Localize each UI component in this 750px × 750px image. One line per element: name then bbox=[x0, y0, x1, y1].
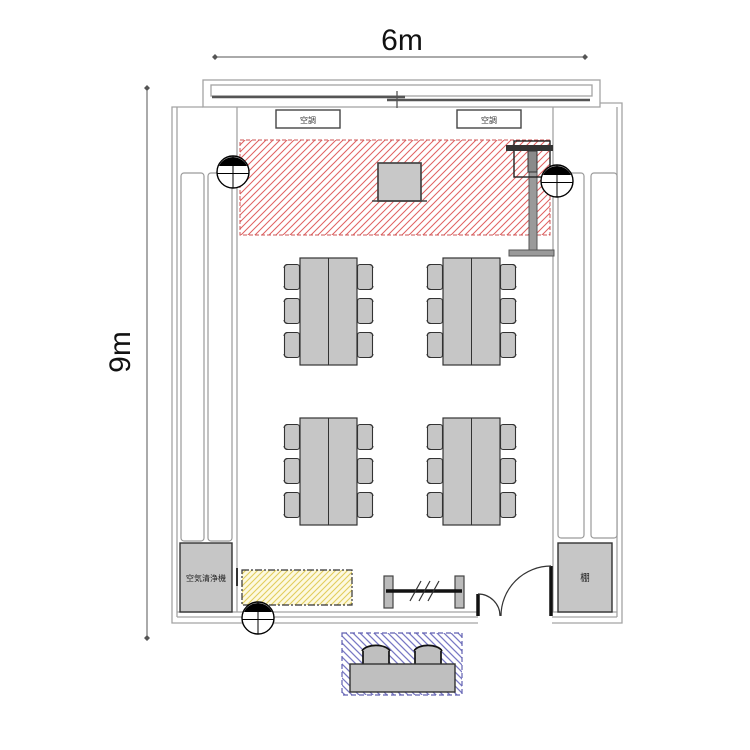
reception-stool-2 bbox=[414, 645, 442, 665]
hvac-right-label: 空調 bbox=[481, 115, 497, 125]
dimension-height: 9m bbox=[104, 85, 150, 641]
top-wall-band bbox=[203, 80, 600, 107]
floor-storage-zone bbox=[242, 570, 352, 605]
reception-area bbox=[342, 633, 462, 695]
table-group-4 bbox=[427, 418, 516, 525]
hvac-unit-right: 空調 bbox=[457, 110, 521, 128]
partition-panels-left bbox=[181, 173, 232, 541]
ceiling-speaker-icon-top-left bbox=[217, 156, 249, 188]
air-purifier-label: 空気清浄機 bbox=[186, 573, 226, 583]
ceiling-speaker-icon-bottom-left bbox=[242, 602, 274, 634]
hvac-unit-left: 空調 bbox=[276, 110, 340, 128]
floor-plan-drawing: 空調 空調 空気清浄機 棚 bbox=[0, 0, 750, 750]
reception-stool-1 bbox=[362, 645, 390, 665]
mobile-whiteboard bbox=[384, 576, 464, 608]
air-purifier: 空気清浄機 bbox=[180, 543, 237, 612]
shelf: 棚 bbox=[558, 543, 612, 612]
table-group-2 bbox=[427, 258, 516, 365]
entrance-door bbox=[478, 566, 551, 616]
screen bbox=[372, 163, 427, 201]
partition-panels-right bbox=[558, 173, 617, 538]
hvac-left-label: 空調 bbox=[300, 115, 316, 125]
floor-plan: 空調 空調 空気清浄機 棚 bbox=[0, 0, 750, 750]
reception-counter bbox=[350, 664, 455, 692]
ceiling-speaker-icon-top-right bbox=[541, 165, 573, 197]
top-window bbox=[211, 85, 592, 96]
sliding-partition-rails bbox=[212, 91, 590, 108]
dimension-width: 6m bbox=[212, 24, 588, 60]
table-group-3 bbox=[284, 418, 373, 525]
height-label: 9m bbox=[104, 331, 137, 373]
shelf-label: 棚 bbox=[580, 572, 590, 584]
table-group-1 bbox=[284, 258, 373, 365]
width-label: 6m bbox=[381, 24, 423, 57]
